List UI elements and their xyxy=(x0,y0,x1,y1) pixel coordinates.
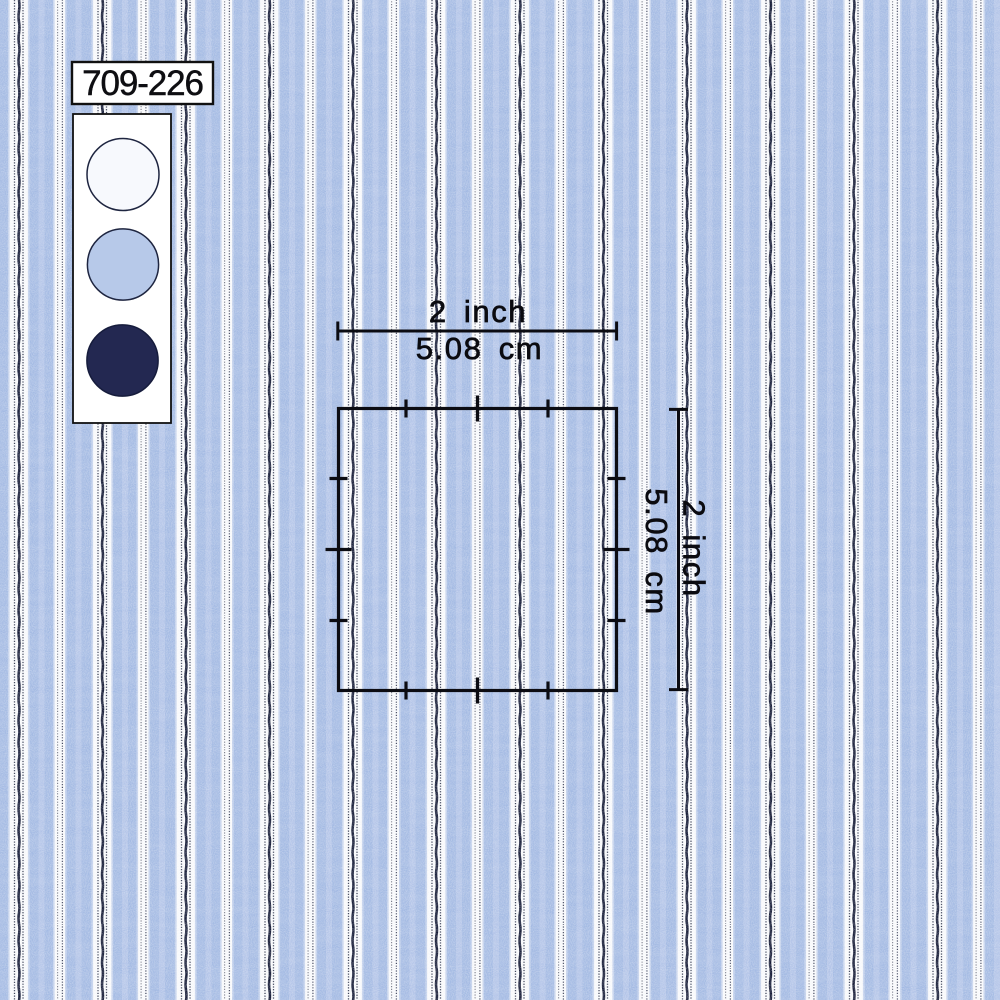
svg-text:5.08 cm: 5.08 cm xyxy=(416,331,543,366)
svg-text:709-226: 709-226 xyxy=(82,64,203,103)
svg-text:2 inch: 2 inch xyxy=(677,499,712,597)
svg-text:5.08 cm: 5.08 cm xyxy=(639,488,674,615)
svg-text:2 inch: 2 inch xyxy=(429,294,527,329)
